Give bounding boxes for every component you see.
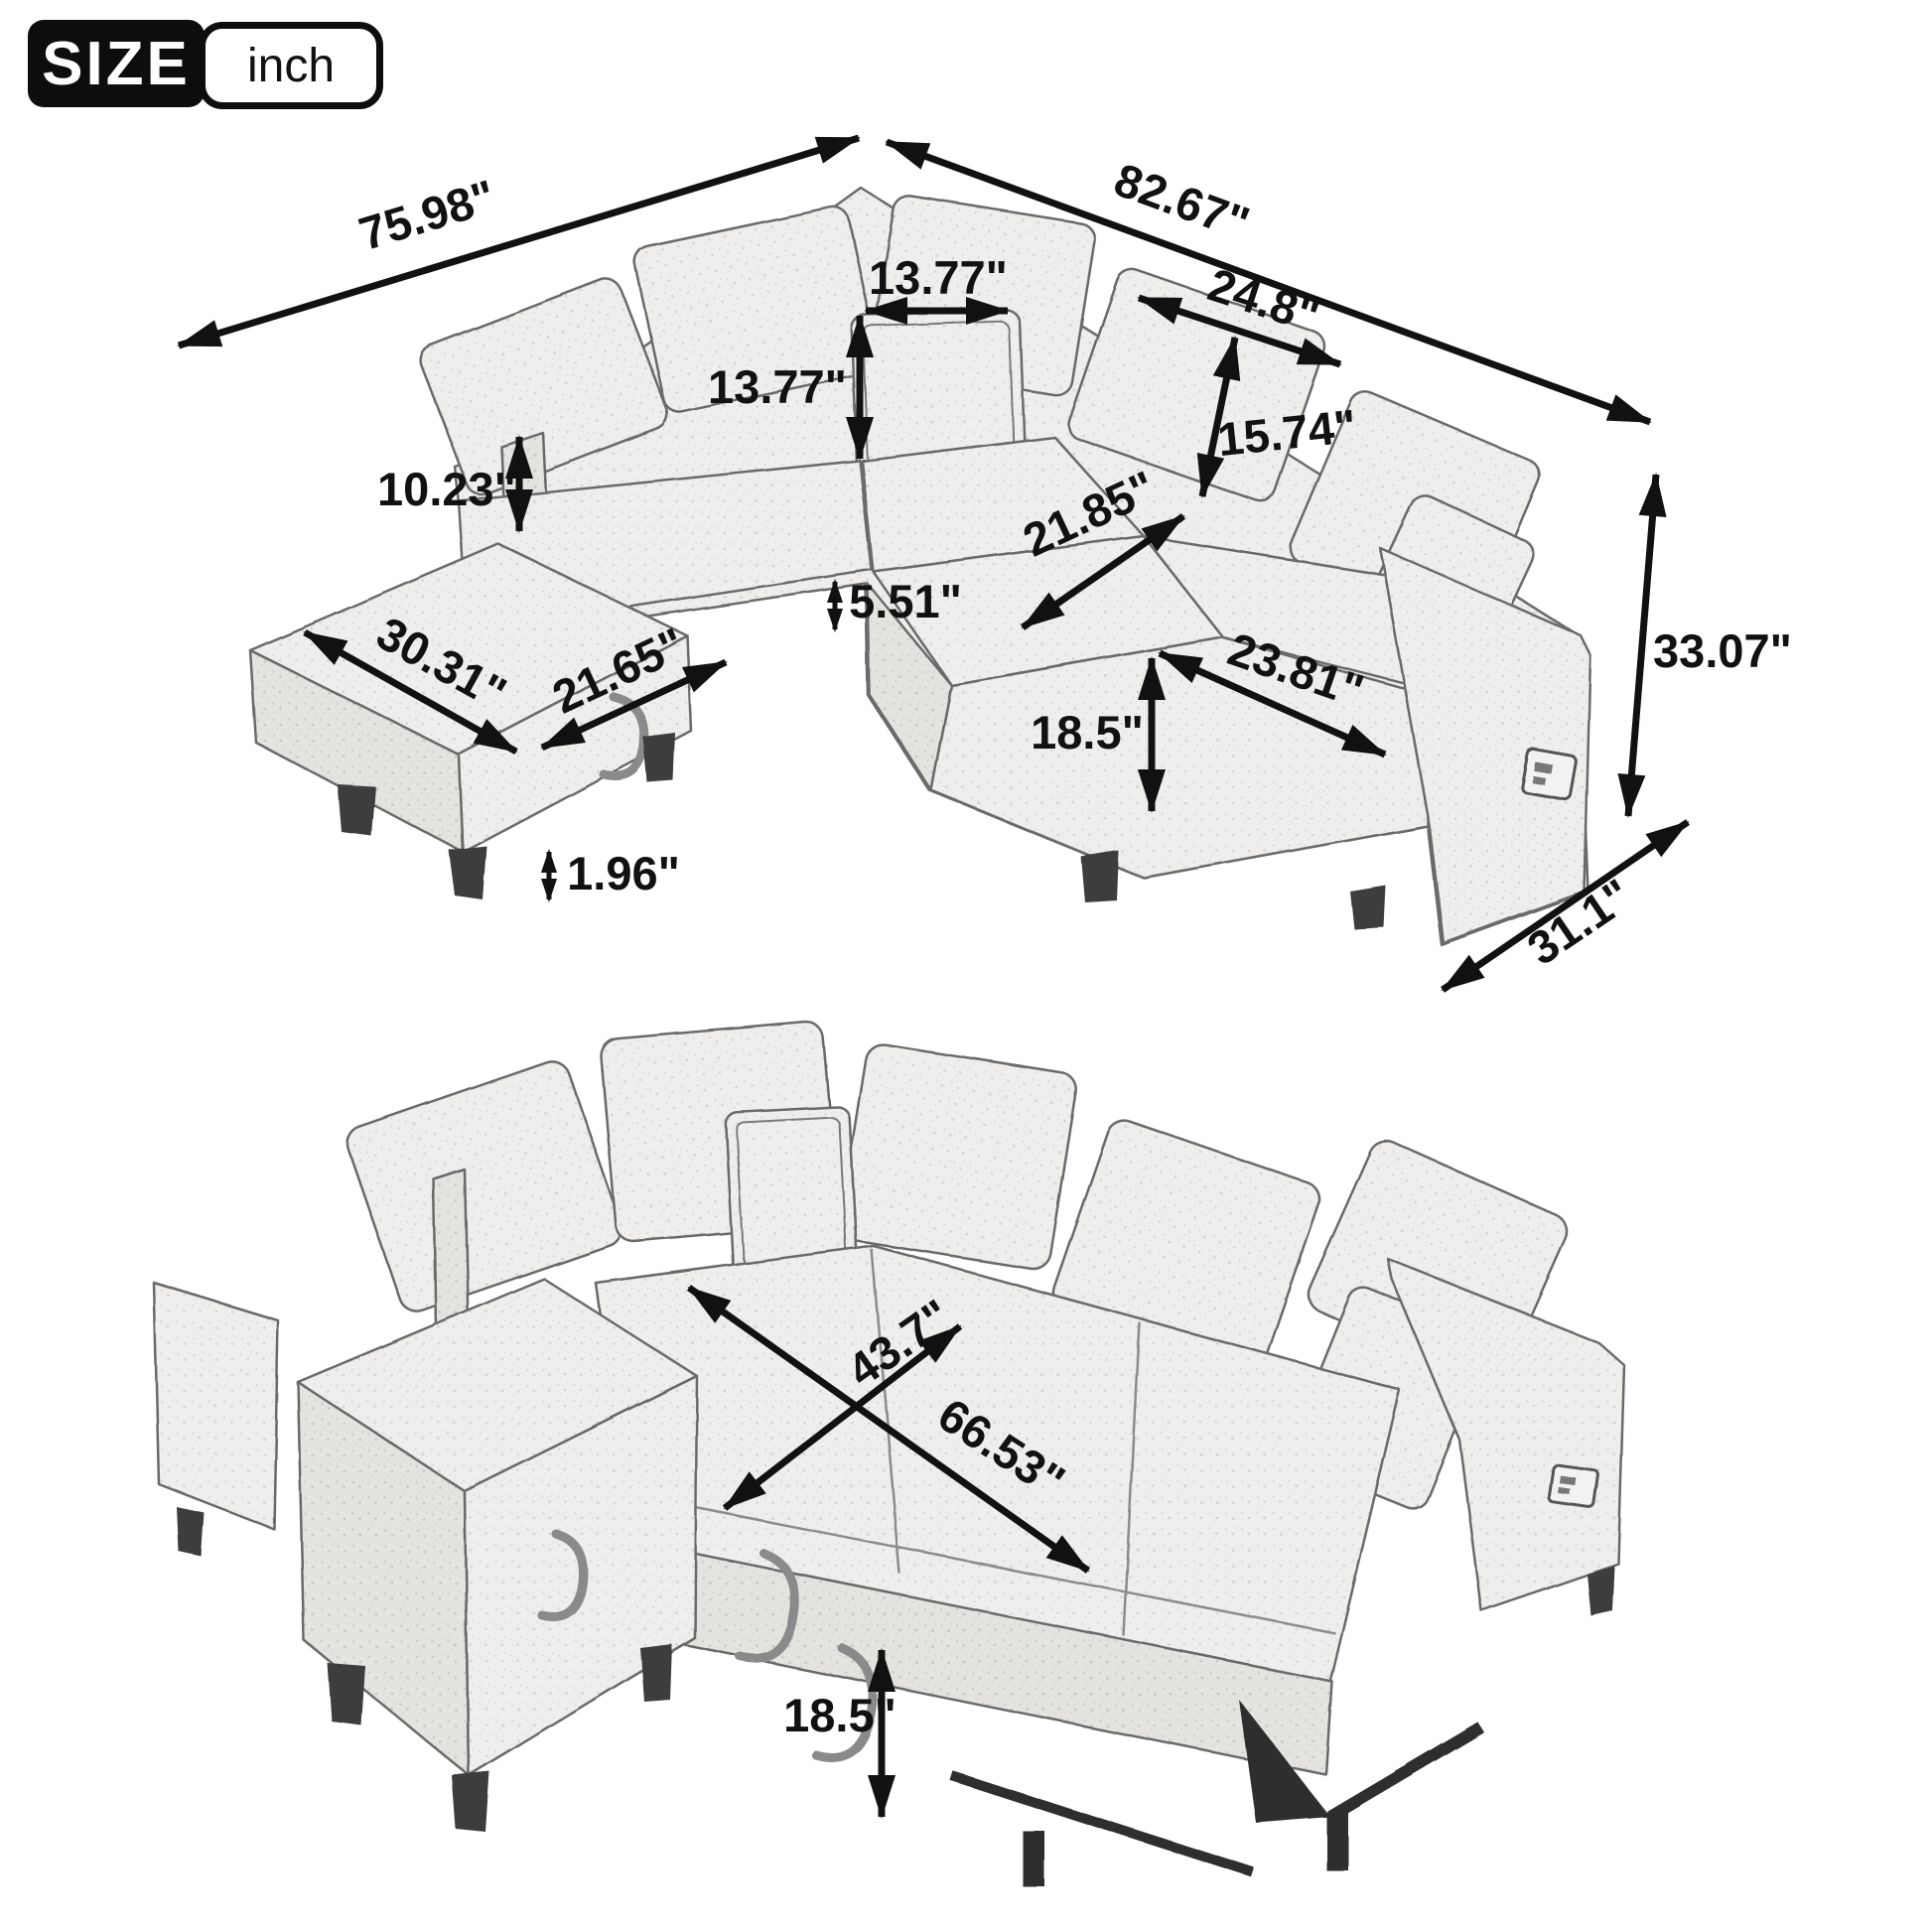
- bed-frame-bar: [1330, 1727, 1481, 1817]
- dim-seat-cushion-thickness: 5.51": [849, 575, 962, 627]
- back-pillow: [837, 1041, 1079, 1271]
- sofa-leg: [177, 1507, 205, 1557]
- sofa-leg: [1587, 1566, 1614, 1615]
- left-seat-edge: [154, 1283, 278, 1529]
- sofa-leg: [449, 846, 486, 899]
- dim-pillow-height: 13.77": [708, 360, 847, 413]
- dim-side-back-height: 10.23": [377, 463, 516, 515]
- usb-port-panel: [1549, 1464, 1599, 1508]
- sofa-bed-sketch-bottom: [154, 1021, 1624, 1886]
- dim-bed-height: 18.5": [783, 1689, 897, 1741]
- sofa-leg: [643, 733, 675, 782]
- dim-overall-width-left: 75.98": [353, 169, 501, 260]
- dim-seat-height: 18.5": [1031, 706, 1144, 759]
- usb-port-panel: [1521, 749, 1578, 800]
- sofa-leg: [338, 784, 375, 836]
- sofa-leg: [452, 1771, 489, 1832]
- bed-frame-bar: [951, 1775, 1253, 1872]
- dim-pillow-width: 13.77": [869, 251, 1008, 304]
- diagram-canvas: 75.98" 82.67" 13.77" 13.77" 24.8" 15.74"…: [0, 0, 1932, 1932]
- sofa-leg: [1350, 886, 1386, 929]
- bed-frame-foot: [1023, 1831, 1044, 1886]
- dim-overall-height: 33.07": [1653, 624, 1792, 677]
- sofa-leg: [1080, 850, 1118, 901]
- arrow-overall-height: [1628, 475, 1656, 816]
- sofa-leg: [640, 1644, 672, 1702]
- back-pillow: [343, 1057, 626, 1316]
- sofa-leg: [328, 1663, 365, 1725]
- bed-frame-foot: [1326, 1813, 1348, 1870]
- sofa-dimension-diagram-page: SIZE inch: [0, 0, 1932, 1932]
- dim-leg-height: 1.96": [567, 847, 680, 899]
